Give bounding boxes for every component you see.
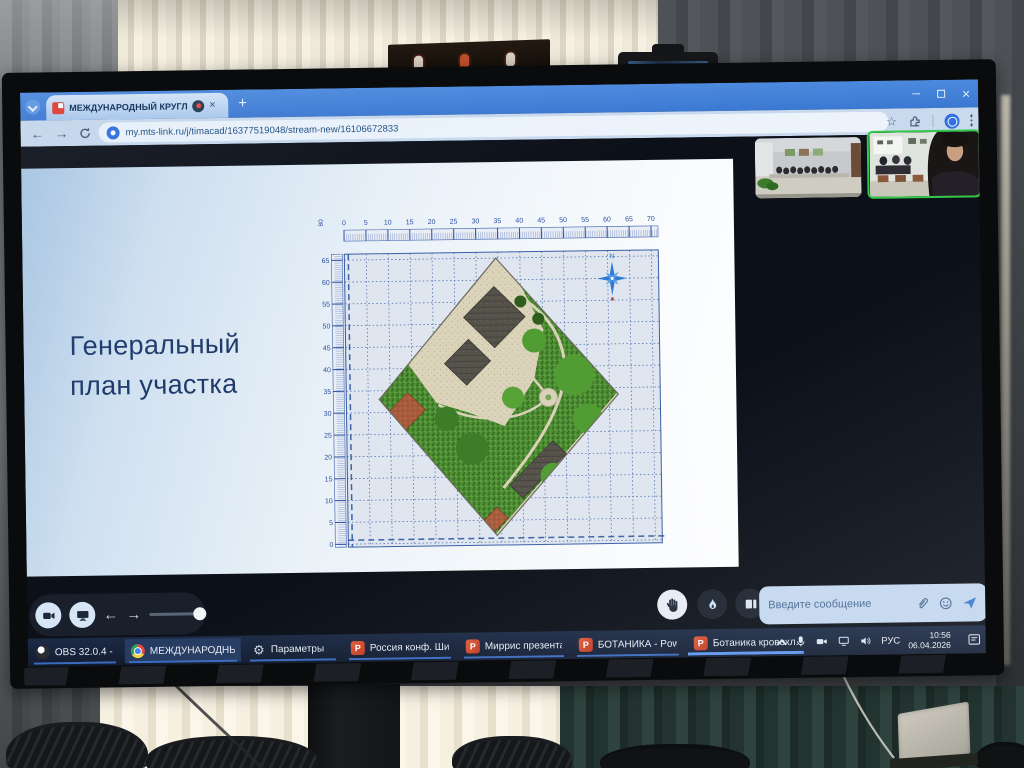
- svg-text:15: 15: [406, 219, 414, 226]
- extensions-icon[interactable]: [908, 115, 921, 128]
- raise-hand-button[interactable]: [657, 589, 687, 619]
- svg-text:40: 40: [515, 218, 523, 225]
- svg-text:10: 10: [384, 220, 392, 227]
- tv-stand-pole: [308, 684, 400, 768]
- window-minimize-button[interactable]: ─: [912, 89, 920, 100]
- taskbar-app-icon: [579, 638, 593, 652]
- svg-text:5: 5: [329, 520, 333, 527]
- site-plan-figure: N: [314, 206, 671, 567]
- svg-text:60: 60: [603, 216, 611, 223]
- mts-link-favicon: [52, 102, 64, 114]
- svg-text:70: 70: [647, 216, 655, 223]
- svg-text:40: 40: [323, 367, 331, 374]
- window-maximize-button[interactable]: [937, 90, 945, 98]
- svg-text:60: 60: [322, 280, 330, 287]
- attach-paperclip-icon[interactable]: [915, 596, 930, 611]
- participant-video-active-speaker[interactable]: [867, 129, 982, 199]
- taskbar-item[interactable]: Россия конф. Ши...: [345, 635, 455, 661]
- clock[interactable]: 10:56 06.04.2026: [908, 630, 951, 651]
- svg-text:25: 25: [450, 219, 458, 226]
- svg-text:20: 20: [324, 455, 332, 462]
- previous-slide-button[interactable]: ←: [103, 606, 118, 623]
- svg-text:30: 30: [324, 411, 332, 418]
- svg-text:45: 45: [323, 345, 331, 352]
- taskbar-app-icon: [351, 641, 365, 655]
- svg-text:25: 25: [324, 433, 332, 440]
- taskbar-app-icon: [36, 645, 50, 659]
- refresh-icon[interactable]: [79, 126, 92, 139]
- meeting-content-area: Генеральный план участка: [21, 133, 986, 638]
- plan-corner-label: 80: [318, 219, 325, 227]
- svg-text:0: 0: [329, 542, 333, 549]
- tab-title: МЕЖДУНАРОДНЫЙ КРУГЛ: [69, 101, 187, 113]
- taskbar-item[interactable]: Миррис презента...: [460, 633, 568, 659]
- forward-icon[interactable]: →: [54, 125, 68, 141]
- browser-menu-icon[interactable]: [970, 115, 973, 127]
- photo-of-conference-room: МЕЖДУНАРОДНЫЙ КРУГЛ × + ─ × ← →: [0, 0, 1024, 768]
- taskbar-item-label: БОТАНИКА - Powe...: [598, 638, 677, 650]
- language-indicator[interactable]: РУС: [881, 635, 900, 646]
- taskbar-item[interactable]: Параметры: [246, 636, 340, 661]
- svg-text:30: 30: [472, 218, 480, 225]
- taskbar-item-label: МЕЖДУНАРОДНЫ...: [150, 644, 235, 656]
- camera-toggle-button[interactable]: [35, 602, 61, 628]
- camera-device-icon[interactable]: [815, 635, 829, 647]
- new-tab-button[interactable]: +: [238, 95, 247, 112]
- reactions-flame-button[interactable]: [697, 589, 727, 619]
- microphone-icon[interactable]: [795, 636, 807, 648]
- svg-text:N: N: [609, 253, 614, 260]
- svg-text:65: 65: [625, 216, 633, 223]
- next-slide-button[interactable]: →: [126, 606, 141, 623]
- tab-search-button[interactable]: [25, 99, 40, 114]
- send-message-icon[interactable]: [961, 594, 978, 611]
- recording-indicator-icon: [192, 100, 204, 112]
- system-tray: РУС 10:56 06.04.2026: [780, 625, 982, 656]
- browser-tab[interactable]: МЕЖДУНАРОДНЫЙ КРУГЛ ×: [46, 93, 228, 121]
- emoji-smiley-icon[interactable]: [938, 595, 953, 610]
- svg-text:50: 50: [322, 323, 330, 330]
- svg-text:35: 35: [323, 389, 331, 396]
- tab-close-icon[interactable]: ×: [209, 100, 216, 111]
- taskbar-item-label: Параметры: [271, 643, 324, 655]
- svg-text:15: 15: [325, 476, 333, 483]
- svg-text:5: 5: [364, 220, 368, 227]
- svg-text:65: 65: [322, 258, 330, 265]
- taskbar-app-icon: [466, 639, 480, 653]
- toolbar-separator: [932, 115, 933, 127]
- taskbar-app-icon: [131, 644, 145, 658]
- svg-text:35: 35: [493, 218, 501, 225]
- screen-content: МЕЖДУНАРОДНЫЙ КРУГЛ × + ─ × ← →: [20, 79, 986, 666]
- zoom-slider[interactable]: [149, 612, 199, 616]
- taskbar-item[interactable]: БОТАНИКА - Powe...: [573, 632, 683, 658]
- bookmark-star-icon[interactable]: ☆: [886, 114, 897, 128]
- slide-title: Генеральный план участка: [69, 323, 320, 406]
- tv-frame: МЕЖДУНАРОДНЫЙ КРУГЛ × + ─ × ← →: [2, 59, 1005, 689]
- meeting-control-bar: ← →: [29, 592, 206, 636]
- window-close-button[interactable]: ×: [962, 86, 970, 100]
- presentation-slide: Генеральный план участка: [21, 159, 739, 577]
- svg-text:45: 45: [537, 217, 545, 224]
- taskbar-app-icon: [252, 642, 266, 656]
- svg-text:50: 50: [559, 217, 567, 224]
- taskbar-item-label: Россия конф. Ши...: [370, 641, 449, 653]
- participant-video-room-view[interactable]: [755, 137, 862, 198]
- chat-input[interactable]: Введите сообщение: [759, 583, 986, 624]
- url-text: my.mts-link.ru/j/timacad/16377519048/str…: [126, 123, 399, 138]
- slider-knob[interactable]: [193, 607, 206, 620]
- svg-text:0: 0: [342, 220, 346, 227]
- speaker-volume-icon[interactable]: [859, 635, 873, 647]
- notification-center-icon[interactable]: [967, 632, 982, 646]
- taskbar-item[interactable]: OBS 32.0.4 - Проф...: [30, 639, 120, 664]
- display-icon[interactable]: [837, 635, 851, 647]
- laptop: [890, 708, 978, 768]
- screen-share-button[interactable]: [69, 602, 95, 628]
- svg-text:20: 20: [428, 219, 436, 226]
- svg-text:10: 10: [325, 498, 333, 505]
- site-icon: [106, 126, 119, 139]
- profile-avatar-icon[interactable]: [944, 113, 959, 128]
- taskbar-item-label: OBS 32.0.4 - Проф...: [55, 646, 114, 658]
- back-icon[interactable]: ←: [30, 125, 44, 141]
- taskbar-app-icon: [694, 636, 708, 650]
- svg-text:55: 55: [581, 217, 589, 224]
- chat-placeholder: Введите сообщение: [768, 597, 907, 611]
- svg-text:55: 55: [322, 302, 330, 309]
- taskbar-item[interactable]: МЕЖДУНАРОДНЫ...: [125, 638, 241, 664]
- taskbar-item-label: Миррис презента...: [485, 640, 562, 652]
